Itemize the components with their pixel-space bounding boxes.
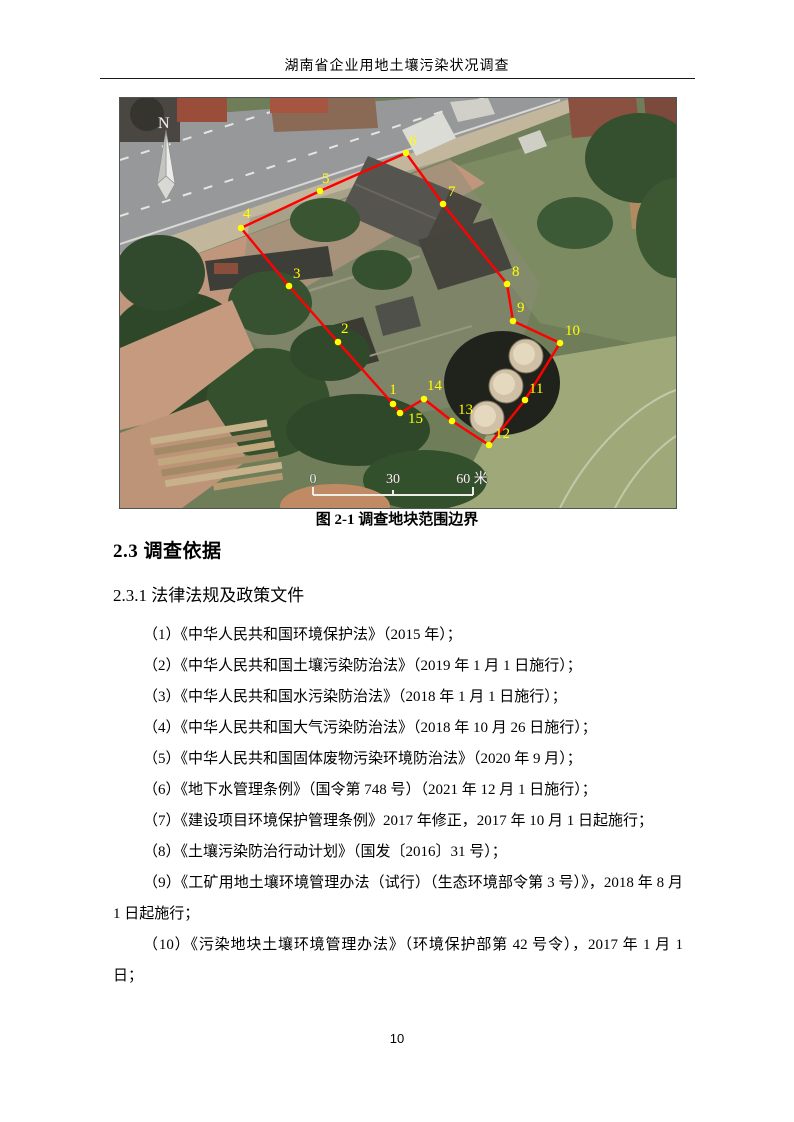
boundary-point-label-3: 3 bbox=[293, 266, 301, 282]
boundary-point-8 bbox=[504, 281, 511, 288]
figure-caption: 图 2-1 调查地块范围边界 bbox=[0, 508, 794, 529]
boundary-point-2 bbox=[335, 339, 342, 346]
boundary-point-label-7: 7 bbox=[448, 184, 456, 200]
boundary-point-1 bbox=[390, 401, 397, 408]
boundary-point-13 bbox=[449, 418, 456, 425]
legal-reference-list: （1）《中华人民共和国环境保护法》（2015 年）；（2）《中华人民共和国土壤污… bbox=[113, 620, 683, 992]
scale-label-0: 0 bbox=[310, 472, 317, 487]
boundary-point-label-13: 13 bbox=[458, 402, 473, 418]
legal-item: （1）《中华人民共和国环境保护法》（2015 年）； bbox=[113, 620, 683, 651]
page-number: 10 bbox=[0, 1031, 794, 1046]
boundary-point-label-5: 5 bbox=[322, 171, 330, 187]
boundary-point-3 bbox=[286, 283, 293, 290]
legal-item: （10）《污染地块土壤环境管理办法》（环境保护部第 42 号令），2017 年 … bbox=[113, 930, 683, 992]
boundary-point-label-15: 15 bbox=[408, 411, 423, 427]
boundary-point-11 bbox=[522, 397, 529, 404]
boundary-point-label-10: 10 bbox=[565, 323, 580, 339]
boundary-point-label-6: 6 bbox=[409, 133, 417, 149]
boundary-point-label-1: 1 bbox=[389, 382, 397, 398]
boundary-point-5 bbox=[317, 188, 324, 195]
page-header-title: 湖南省企业用地土壤污染状况调查 bbox=[0, 55, 794, 75]
section-heading: 2.3 调查依据 bbox=[113, 536, 222, 563]
subsection-heading: 2.3.1 法律法规及政策文件 bbox=[113, 581, 304, 606]
legal-item: （6）《地下水管理条例》（国令第 748 号）（2021 年 12 月 1 日施… bbox=[113, 775, 683, 806]
legal-item: （4）《中华人民共和国大气污染防治法》（2018 年 10 月 26 日施行）； bbox=[113, 713, 683, 744]
north-label: N bbox=[158, 115, 170, 132]
scale-label-2: 60 米 bbox=[456, 471, 488, 487]
legal-item: （8）《土壤污染防治行动计划》（国发〔2016〕31 号）； bbox=[113, 837, 683, 868]
legal-item: （5）《中华人民共和国固体废物污染环境防治法》（2020 年 9 月）； bbox=[113, 744, 683, 775]
boundary-point-9 bbox=[510, 318, 517, 325]
satellite-map: 123456789101112131415 N 03060 米 bbox=[120, 98, 676, 508]
header-rule bbox=[100, 78, 695, 79]
boundary-point-label-11: 11 bbox=[529, 381, 543, 397]
boundary-point-15 bbox=[397, 410, 404, 417]
boundary-point-label-2: 2 bbox=[341, 321, 349, 337]
document-page: 湖南省企业用地土壤污染状况调查 bbox=[0, 0, 794, 1122]
boundary-point-7 bbox=[440, 201, 447, 208]
boundary-point-label-9: 9 bbox=[517, 300, 525, 316]
scale-label-1: 30 bbox=[386, 472, 400, 487]
figure-site-map: 123456789101112131415 N 03060 米 bbox=[119, 97, 677, 509]
boundary-point-6 bbox=[403, 150, 410, 157]
boundary-point-label-14: 14 bbox=[427, 378, 443, 394]
boundary-point-label-12: 12 bbox=[495, 426, 510, 442]
legal-item: （9）《工矿用地土壤环境管理办法（试行）（生态环境部令第 3 号）》，2018 … bbox=[113, 868, 683, 930]
legal-item: （2）《中华人民共和国土壤污染防治法》（2019 年 1 月 1 日施行）； bbox=[113, 651, 683, 682]
legal-item: （7）《建设项目环境保护管理条例》2017 年修正，2017 年 10 月 1 … bbox=[113, 806, 683, 837]
boundary-point-4 bbox=[238, 225, 245, 232]
boundary-point-14 bbox=[421, 396, 428, 403]
legal-item: （3）《中华人民共和国水污染防治法》（2018 年 1 月 1 日施行）； bbox=[113, 682, 683, 713]
boundary-point-label-4: 4 bbox=[243, 206, 251, 222]
boundary-point-12 bbox=[486, 442, 493, 449]
boundary-point-label-8: 8 bbox=[512, 264, 520, 280]
boundary-point-10 bbox=[557, 340, 564, 347]
